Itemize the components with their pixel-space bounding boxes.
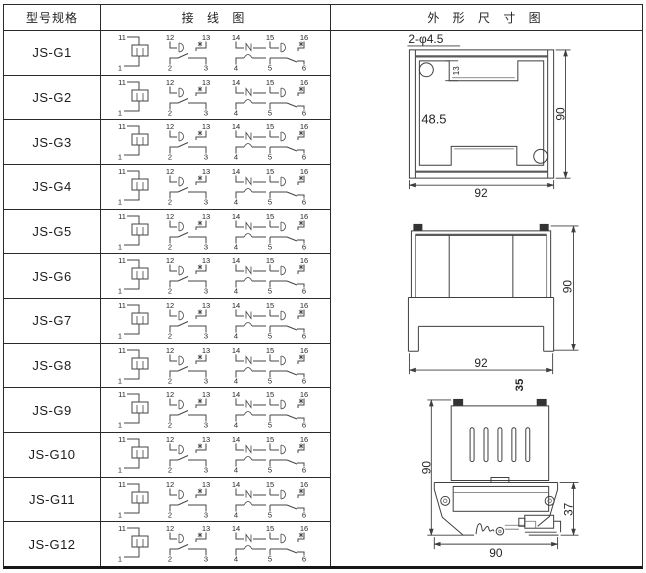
terminal-label: 14 bbox=[232, 33, 240, 42]
terminal-label: 11 bbox=[118, 390, 126, 399]
terminal-label: 1 bbox=[118, 197, 122, 206]
time-delay-contact-icon bbox=[281, 534, 286, 543]
datasheet-page: 型号规格 接 线 图 外 形 尺 寸 图 JS-G1 11 12 13 14 1… bbox=[0, 0, 646, 573]
terminal-label: 15 bbox=[266, 390, 274, 399]
ventilation-slots bbox=[470, 428, 530, 462]
terminal-label: 2 bbox=[168, 465, 172, 474]
time-delay-contact-icon bbox=[281, 490, 286, 499]
instant-contact-star-icon bbox=[198, 399, 202, 404]
terminal-label: 3 bbox=[204, 108, 208, 117]
wiring-diagram-cell: 11 12 13 14 15 16 1 2 3 4 5 6 bbox=[101, 478, 330, 522]
delay-open-contact-icon bbox=[246, 401, 251, 408]
terminal-label: 15 bbox=[266, 78, 274, 87]
time-delay-contact-icon bbox=[281, 222, 286, 231]
bridge-contact-icon bbox=[244, 54, 252, 58]
terminal-label: 12 bbox=[166, 167, 174, 176]
wiring-diagram-cell: 11 12 13 14 15 16 1 2 3 4 5 6 bbox=[101, 31, 330, 75]
terminal-label: 11 bbox=[118, 122, 126, 131]
contact-group-b bbox=[236, 175, 304, 198]
model-label: JS-G10 bbox=[4, 433, 101, 477]
terminal-label: 12 bbox=[166, 480, 174, 489]
terminal-label: 5 bbox=[268, 108, 272, 117]
terminal-label: 16 bbox=[300, 346, 308, 355]
terminal-label: 4 bbox=[234, 465, 238, 474]
terminal-label: 6 bbox=[302, 242, 306, 251]
delay-open-contact-icon bbox=[246, 490, 251, 497]
terminal-label: 2 bbox=[168, 376, 172, 385]
terminal-label: 14 bbox=[232, 78, 240, 87]
contact-group-a bbox=[170, 399, 206, 422]
notch-dimension: 13 bbox=[452, 66, 461, 75]
contact-group-a bbox=[170, 488, 206, 511]
terminal-label: 5 bbox=[268, 331, 272, 340]
contact-group-b bbox=[236, 131, 304, 154]
din-rail-latch bbox=[519, 515, 561, 535]
terminal-label: 4 bbox=[234, 331, 238, 340]
terminal-label: 16 bbox=[300, 122, 308, 131]
time-delay-contact-icon bbox=[179, 177, 184, 186]
wiring-diagram-cell: 11 12 13 14 15 16 1 2 3 4 5 6 bbox=[101, 210, 330, 254]
relay-coil-symbol bbox=[124, 350, 148, 379]
front-view-drawing: 90 92 35 bbox=[408, 224, 578, 391]
model-label: JS-G8 bbox=[4, 344, 101, 388]
relay-coil-symbol bbox=[124, 216, 148, 245]
bridge-contact-icon bbox=[244, 278, 252, 282]
terminal-label: 3 bbox=[204, 242, 208, 251]
terminal-label: 16 bbox=[300, 480, 308, 489]
terminal-label: 15 bbox=[266, 480, 274, 489]
terminal-label: 6 bbox=[302, 421, 306, 430]
time-delay-contact-icon bbox=[179, 88, 184, 97]
table-row: JS-G11 11 12 13 14 15 16 1 2 3 4 5 6 bbox=[4, 478, 330, 523]
terminal-label: 5 bbox=[268, 465, 272, 474]
terminal-label: 3 bbox=[204, 555, 208, 564]
wiring-diagram-cell: 11 12 13 14 15 16 1 2 3 4 5 6 bbox=[101, 344, 330, 388]
mounting-tab-right bbox=[537, 399, 547, 406]
instant-contact-star-icon bbox=[198, 488, 202, 493]
terminal-label: 14 bbox=[232, 301, 240, 310]
terminal-label: 11 bbox=[118, 167, 126, 176]
terminal-label: 13 bbox=[202, 346, 210, 355]
terminal-label: 1 bbox=[118, 153, 122, 162]
terminal-label: 3 bbox=[204, 63, 208, 72]
rear-width-dimension: 92 bbox=[474, 186, 488, 200]
terminal-label: 2 bbox=[168, 555, 172, 564]
time-delay-contact-icon bbox=[281, 400, 286, 409]
terminal-label: 13 bbox=[202, 78, 210, 87]
terminal-label: 5 bbox=[268, 510, 272, 519]
terminal-label: 16 bbox=[300, 435, 308, 444]
terminal-label: 5 bbox=[268, 197, 272, 206]
terminal-label: 14 bbox=[232, 390, 240, 399]
contact-group-a bbox=[170, 175, 206, 198]
screw-hole-left bbox=[441, 496, 450, 505]
table-row: JS-G1 11 12 13 14 15 16 1 2 3 4 5 6 bbox=[4, 31, 330, 76]
delay-open-contact-icon bbox=[246, 133, 251, 140]
terminal-label: 2 bbox=[168, 153, 172, 162]
terminal-label: 4 bbox=[234, 421, 238, 430]
terminal-label: 13 bbox=[202, 390, 210, 399]
instant-contact-star-icon bbox=[299, 488, 303, 493]
bridge-contact-icon bbox=[244, 412, 252, 416]
instant-contact-star-icon bbox=[299, 443, 303, 448]
wiring-diagram-cell: 11 12 13 14 15 16 1 2 3 4 5 6 bbox=[101, 254, 330, 298]
terminal-label: 5 bbox=[268, 63, 272, 72]
terminal-label: 6 bbox=[302, 153, 306, 162]
relay-coil-symbol bbox=[124, 484, 148, 513]
contact-group-a bbox=[170, 86, 206, 109]
time-delay-contact-icon bbox=[281, 266, 286, 275]
terminal-label: 2 bbox=[168, 421, 172, 430]
terminal-label: 13 bbox=[202, 122, 210, 131]
wiring-diagram: 11 12 13 14 15 16 1 2 3 4 5 6 bbox=[113, 434, 318, 476]
terminal-label: 13 bbox=[202, 301, 210, 310]
terminal-label: 15 bbox=[266, 122, 274, 131]
terminal-label: 2 bbox=[168, 242, 172, 251]
bridge-contact-icon bbox=[244, 188, 252, 192]
relay-coil-symbol bbox=[124, 528, 148, 557]
contact-group-a bbox=[170, 220, 206, 243]
terminal-label: 12 bbox=[166, 301, 174, 310]
relay-coil-symbol bbox=[124, 171, 148, 200]
relay-coil-symbol bbox=[124, 260, 148, 289]
table-row: JS-G9 11 12 13 14 15 16 1 2 3 4 5 6 bbox=[4, 388, 330, 433]
wiring-diagram: 11 12 13 14 15 16 1 2 3 4 5 6 bbox=[113, 255, 318, 297]
relay-coil-symbol bbox=[124, 394, 148, 423]
terminal-label: 4 bbox=[234, 108, 238, 117]
delay-open-contact-icon bbox=[246, 445, 251, 452]
model-label: JS-G1 bbox=[4, 31, 101, 75]
terminal-label: 3 bbox=[204, 153, 208, 162]
model-label: JS-G9 bbox=[4, 388, 101, 432]
terminal-label: 11 bbox=[118, 480, 126, 489]
terminal-label: 13 bbox=[202, 212, 210, 221]
terminal-label: 4 bbox=[234, 63, 238, 72]
instant-contact-star-icon bbox=[198, 175, 202, 180]
wiring-diagram: 11 12 13 14 15 16 1 2 3 4 5 6 bbox=[113, 345, 318, 387]
relay-coil-symbol bbox=[124, 126, 148, 155]
terminal-label: 12 bbox=[166, 435, 174, 444]
wiring-diagram: 11 12 13 14 15 16 1 2 3 4 5 6 bbox=[113, 523, 318, 565]
terminal-label: 3 bbox=[204, 421, 208, 430]
contact-group-b bbox=[236, 265, 304, 288]
contact-group-a bbox=[170, 41, 206, 64]
delay-open-contact-icon bbox=[246, 311, 251, 318]
terminal-label: 6 bbox=[302, 197, 306, 206]
terminal-label: 5 bbox=[268, 376, 272, 385]
time-delay-contact-icon bbox=[179, 445, 184, 454]
table-row: JS-G8 11 12 13 14 15 16 1 2 3 4 5 6 bbox=[4, 344, 330, 389]
contact-group-b bbox=[236, 533, 304, 556]
terminal-label: 14 bbox=[232, 524, 240, 533]
table-row: JS-G12 11 12 13 14 15 16 1 2 3 4 5 6 bbox=[4, 522, 330, 566]
terminal-label: 14 bbox=[232, 435, 240, 444]
delay-open-contact-icon bbox=[246, 177, 251, 184]
terminal-label: 16 bbox=[300, 524, 308, 533]
terminal-label: 16 bbox=[300, 212, 308, 221]
clip-height-dimension: 37 bbox=[562, 502, 576, 516]
delay-open-contact-icon bbox=[246, 535, 251, 542]
contact-group-b bbox=[236, 488, 304, 511]
terminal-label: 15 bbox=[266, 33, 274, 42]
table-row: JS-G5 11 12 13 14 15 16 1 2 3 4 5 6 bbox=[4, 210, 330, 255]
table-row: JS-G2 11 12 13 14 15 16 1 2 3 4 5 6 bbox=[4, 76, 330, 121]
terminal-label: 4 bbox=[234, 555, 238, 564]
terminal-label: 12 bbox=[166, 346, 174, 355]
mounting-hole-top-left bbox=[419, 63, 433, 77]
terminal-label: 15 bbox=[266, 346, 274, 355]
screw-hole-right bbox=[545, 496, 554, 505]
terminal-label: 14 bbox=[232, 212, 240, 221]
terminal-label: 12 bbox=[166, 256, 174, 265]
time-delay-contact-icon bbox=[281, 88, 286, 97]
wiring-diagram: 11 12 13 14 15 16 1 2 3 4 5 6 bbox=[113, 121, 318, 163]
bridge-contact-icon bbox=[244, 367, 252, 371]
contact-group-a bbox=[170, 265, 206, 288]
terminal-label: 14 bbox=[232, 480, 240, 489]
terminal-label: 1 bbox=[118, 63, 122, 72]
table-row: JS-G3 11 12 13 14 15 16 1 2 3 4 5 6 bbox=[4, 120, 330, 165]
terminal-label: 13 bbox=[202, 435, 210, 444]
rail-depth-label: 35 bbox=[514, 378, 526, 391]
terminal-label: 1 bbox=[118, 331, 122, 340]
terminal-label: 11 bbox=[118, 256, 126, 265]
time-delay-contact-icon bbox=[179, 222, 184, 231]
terminal-label: 1 bbox=[118, 465, 122, 474]
contact-group-b bbox=[236, 220, 304, 243]
terminal-label: 12 bbox=[166, 78, 174, 87]
wiring-diagram-cell: 11 12 13 14 15 16 1 2 3 4 5 6 bbox=[101, 522, 330, 566]
terminal-label: 16 bbox=[300, 256, 308, 265]
terminal-label: 6 bbox=[302, 376, 306, 385]
terminal-label: 6 bbox=[302, 465, 306, 474]
terminal-label: 1 bbox=[118, 242, 122, 251]
side-height-dimension: 90 bbox=[419, 461, 433, 475]
terminal-label: 15 bbox=[266, 301, 274, 310]
terminal-label: 3 bbox=[204, 197, 208, 206]
terminal-label: 11 bbox=[118, 212, 126, 221]
table-row: JS-G6 11 12 13 14 15 16 1 2 3 4 5 6 bbox=[4, 254, 330, 299]
terminal-label: 12 bbox=[166, 524, 174, 533]
header-model-spec: 型号规格 bbox=[4, 5, 101, 30]
instant-contact-star-icon bbox=[198, 533, 202, 538]
wiring-diagram-cell: 11 12 13 14 15 16 1 2 3 4 5 6 bbox=[101, 433, 330, 477]
time-delay-contact-icon bbox=[281, 177, 286, 186]
terminal-label: 11 bbox=[118, 346, 126, 355]
time-delay-contact-icon bbox=[281, 311, 286, 320]
model-label: JS-G12 bbox=[4, 522, 101, 566]
table-row: JS-G10 11 12 13 14 15 16 1 2 3 4 5 6 bbox=[4, 433, 330, 478]
terminal-label: 12 bbox=[166, 390, 174, 399]
terminal-label: 1 bbox=[118, 287, 122, 296]
front-width-dimension: 92 bbox=[474, 356, 488, 370]
mounting-tab-left bbox=[413, 224, 422, 231]
terminal-label: 11 bbox=[118, 78, 126, 87]
instant-contact-star-icon bbox=[198, 265, 202, 270]
terminal-label: 15 bbox=[266, 524, 274, 533]
model-label: JS-G3 bbox=[4, 120, 101, 164]
time-delay-contact-icon bbox=[281, 43, 286, 52]
model-label: JS-G4 bbox=[4, 165, 101, 209]
terminal-label: 6 bbox=[302, 287, 306, 296]
terminal-label: 5 bbox=[268, 153, 272, 162]
delay-open-contact-icon bbox=[246, 267, 251, 274]
mounting-tab-right bbox=[540, 224, 549, 231]
bridge-contact-icon bbox=[244, 322, 252, 326]
terminal-label: 13 bbox=[202, 256, 210, 265]
time-delay-contact-icon bbox=[179, 311, 184, 320]
time-delay-contact-icon bbox=[179, 534, 184, 543]
delay-open-contact-icon bbox=[246, 43, 251, 50]
terminal-label: 16 bbox=[300, 301, 308, 310]
instant-contact-star-icon bbox=[299, 86, 303, 91]
terminal-label: 6 bbox=[302, 331, 306, 340]
instant-contact-star-icon bbox=[299, 175, 303, 180]
terminal-label: 6 bbox=[302, 108, 306, 117]
model-label: JS-G11 bbox=[4, 478, 101, 522]
terminal-label: 11 bbox=[118, 301, 126, 310]
contact-group-a bbox=[170, 131, 206, 154]
wiring-diagram: 11 12 13 14 15 16 1 2 3 4 5 6 bbox=[113, 389, 318, 431]
terminal-label: 1 bbox=[118, 376, 122, 385]
model-label: JS-G2 bbox=[4, 76, 101, 120]
rear-view-drawing: 2-φ4.5 13 48.5 90 bbox=[407, 32, 570, 200]
terminal-label: 13 bbox=[202, 167, 210, 176]
terminal-label: 14 bbox=[232, 167, 240, 176]
terminal-label: 4 bbox=[234, 153, 238, 162]
instant-contact-star-icon bbox=[198, 41, 202, 46]
terminal-label: 3 bbox=[204, 376, 208, 385]
terminal-label: 5 bbox=[268, 421, 272, 430]
time-delay-contact-icon bbox=[179, 490, 184, 499]
terminal-strip bbox=[453, 486, 548, 511]
terminal-label: 11 bbox=[118, 524, 126, 533]
terminal-label: 2 bbox=[168, 510, 172, 519]
wiring-diagram-cell: 11 12 13 14 15 16 1 2 3 4 5 6 bbox=[101, 299, 330, 343]
header-outline-dimensions: 外 形 尺 寸 图 bbox=[331, 5, 642, 30]
instant-contact-star-icon bbox=[299, 309, 303, 314]
terminal-label: 2 bbox=[168, 287, 172, 296]
time-delay-contact-icon bbox=[179, 356, 184, 365]
model-label: JS-G5 bbox=[4, 210, 101, 254]
rear-height-dimension: 90 bbox=[554, 107, 568, 121]
mounting-tab-left bbox=[453, 399, 463, 406]
bridge-contact-icon bbox=[244, 233, 252, 237]
terminal-label: 1 bbox=[118, 421, 122, 430]
contact-group-b bbox=[236, 354, 304, 377]
contact-group-b bbox=[236, 399, 304, 422]
delay-open-contact-icon bbox=[246, 222, 251, 229]
instant-contact-star-icon bbox=[299, 220, 303, 225]
terminal-label: 6 bbox=[302, 555, 306, 564]
time-delay-contact-icon bbox=[179, 43, 184, 52]
terminal-label: 5 bbox=[268, 555, 272, 564]
instant-contact-star-icon bbox=[299, 533, 303, 538]
terminal-label: 12 bbox=[166, 212, 174, 221]
terminal-label: 13 bbox=[202, 480, 210, 489]
terminal-label: 1 bbox=[118, 555, 122, 564]
terminal-label: 4 bbox=[234, 376, 238, 385]
side-view-drawing: 90 37 90 bbox=[419, 399, 578, 560]
bridge-contact-icon bbox=[244, 456, 252, 460]
instant-contact-star-icon bbox=[198, 86, 202, 91]
table-header: 型号规格 接 线 图 外 形 尺 寸 图 bbox=[4, 5, 642, 31]
instant-contact-star-icon bbox=[198, 131, 202, 136]
terminal-label: 11 bbox=[118, 33, 126, 42]
instant-contact-star-icon bbox=[299, 399, 303, 404]
wiring-diagram: 11 12 13 14 15 16 1 2 3 4 5 6 bbox=[113, 211, 318, 253]
relay-coil-symbol bbox=[124, 37, 148, 66]
terminal-label: 2 bbox=[168, 331, 172, 340]
instant-contact-star-icon bbox=[299, 41, 303, 46]
bridge-contact-icon bbox=[244, 144, 252, 148]
terminal-label: 13 bbox=[202, 33, 210, 42]
terminal-label: 4 bbox=[234, 197, 238, 206]
terminal-label: 3 bbox=[204, 287, 208, 296]
model-rows: JS-G1 11 12 13 14 15 16 1 2 3 4 5 6 bbox=[4, 31, 331, 566]
table-row: JS-G4 11 12 13 14 15 16 1 2 3 4 5 6 bbox=[4, 165, 330, 210]
wiring-diagram: 11 12 13 14 15 16 1 2 3 4 5 6 bbox=[113, 300, 318, 342]
terminal-label: 14 bbox=[232, 256, 240, 265]
contact-group-a bbox=[170, 443, 206, 466]
terminal-label: 5 bbox=[268, 242, 272, 251]
wiring-diagram-cell: 11 12 13 14 15 16 1 2 3 4 5 6 bbox=[101, 120, 330, 164]
terminal-label: 11 bbox=[118, 435, 126, 444]
relay-coil-symbol bbox=[124, 439, 148, 468]
terminal-label: 16 bbox=[300, 390, 308, 399]
contact-group-b bbox=[236, 443, 304, 466]
terminal-label: 2 bbox=[168, 63, 172, 72]
time-delay-contact-icon bbox=[281, 132, 286, 141]
wiring-diagram-cell: 11 12 13 14 15 16 1 2 3 4 5 6 bbox=[101, 388, 330, 432]
wiring-diagram: 11 12 13 14 15 16 1 2 3 4 5 6 bbox=[113, 32, 318, 74]
time-delay-contact-icon bbox=[281, 445, 286, 454]
inner-dimension: 48.5 bbox=[421, 111, 446, 126]
time-delay-contact-icon bbox=[179, 266, 184, 275]
side-width-dimension: 90 bbox=[489, 546, 503, 560]
contact-group-b bbox=[236, 41, 304, 64]
header-wiring-diagram: 接 线 图 bbox=[101, 5, 331, 30]
table-row: JS-G7 11 12 13 14 15 16 1 2 3 4 5 6 bbox=[4, 299, 330, 344]
terminal-label: 12 bbox=[166, 33, 174, 42]
wiring-diagram: 11 12 13 14 15 16 1 2 3 4 5 6 bbox=[113, 479, 318, 521]
time-delay-contact-icon bbox=[179, 132, 184, 141]
clip-pivot bbox=[496, 527, 504, 535]
terminal-label: 15 bbox=[266, 435, 274, 444]
bridge-contact-icon bbox=[244, 99, 252, 103]
terminal-label: 3 bbox=[204, 331, 208, 340]
terminal-label: 4 bbox=[234, 510, 238, 519]
terminal-label: 1 bbox=[118, 510, 122, 519]
relay-coil-symbol bbox=[124, 82, 148, 111]
terminal-label: 2 bbox=[168, 108, 172, 117]
terminal-label: 6 bbox=[302, 510, 306, 519]
bridge-contact-icon bbox=[244, 501, 252, 505]
table-body: JS-G1 11 12 13 14 15 16 1 2 3 4 5 6 bbox=[4, 31, 642, 566]
outline-dimension-drawings: 2-φ4.5 13 48.5 90 bbox=[331, 31, 642, 566]
terminal-label: 15 bbox=[266, 212, 274, 221]
din-clip-spring bbox=[476, 524, 494, 535]
terminal-label: 3 bbox=[204, 510, 208, 519]
instant-contact-star-icon bbox=[198, 443, 202, 448]
terminal-label: 4 bbox=[234, 287, 238, 296]
instant-contact-star-icon bbox=[198, 354, 202, 359]
spec-table: 型号规格 接 线 图 外 形 尺 寸 图 JS-G1 11 12 13 14 1… bbox=[3, 4, 643, 569]
bracket-left-outline bbox=[434, 482, 474, 535]
instant-contact-star-icon bbox=[299, 131, 303, 136]
terminal-label: 15 bbox=[266, 256, 274, 265]
relay-coil-symbol bbox=[124, 305, 148, 334]
